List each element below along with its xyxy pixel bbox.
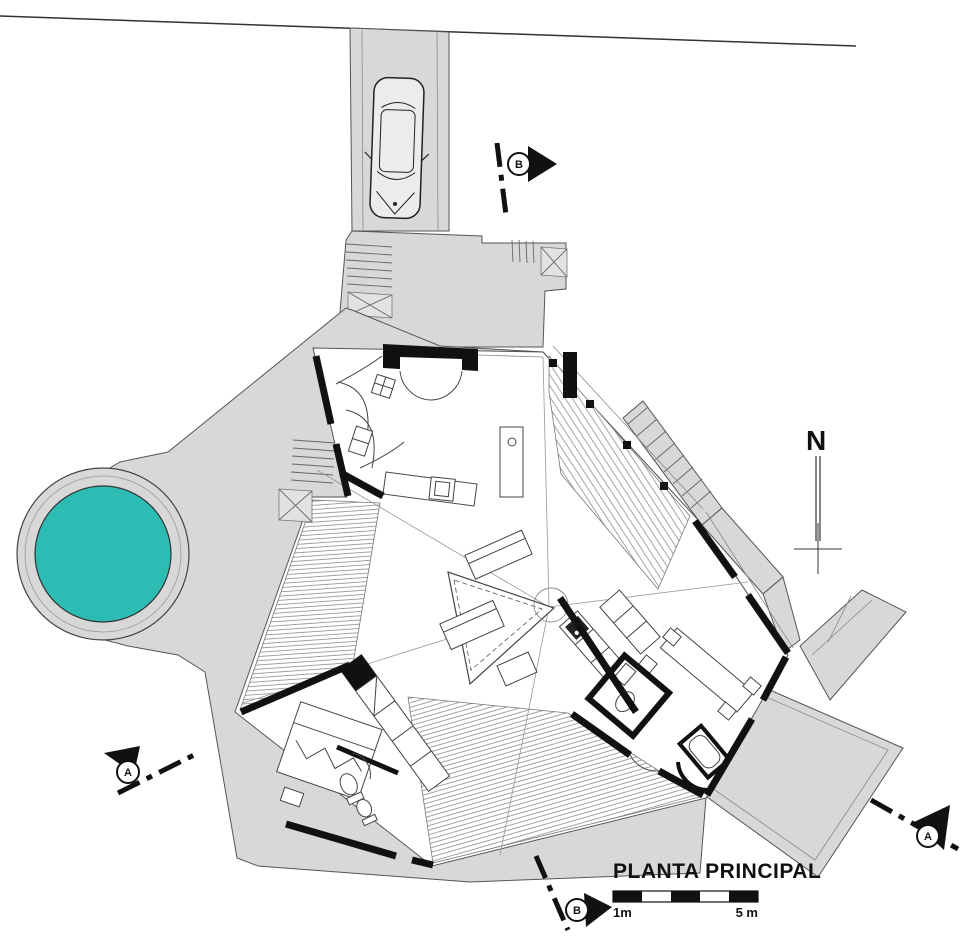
section-label-left: A xyxy=(124,767,132,779)
floor-plan-drawing: N B A B A PLANTA PRINCIPAL 1m 5 m xyxy=(0,0,960,937)
pool xyxy=(17,468,189,640)
plan-title: PLANTA PRINCIPAL xyxy=(613,860,821,883)
section-marker-top: B xyxy=(497,143,557,215)
pool-water xyxy=(35,486,171,622)
floor-plan-page: N B A B A PLANTA PRINCIPAL 1m 5 m xyxy=(0,0,960,937)
section-marker-right: A xyxy=(871,800,958,850)
north-arrow: N xyxy=(794,425,842,574)
section-marker-left: A xyxy=(104,746,200,793)
section-label-right: A xyxy=(924,831,932,843)
section-label-top: B xyxy=(515,159,523,171)
scale-start-label: 1m xyxy=(613,905,632,920)
north-label: N xyxy=(806,425,826,456)
scale-end-label: 5 m xyxy=(736,905,758,920)
ramp-wedge xyxy=(800,590,906,700)
scale-bar: 1m 5 m xyxy=(613,891,758,920)
section-label-bottom: B xyxy=(573,905,581,917)
